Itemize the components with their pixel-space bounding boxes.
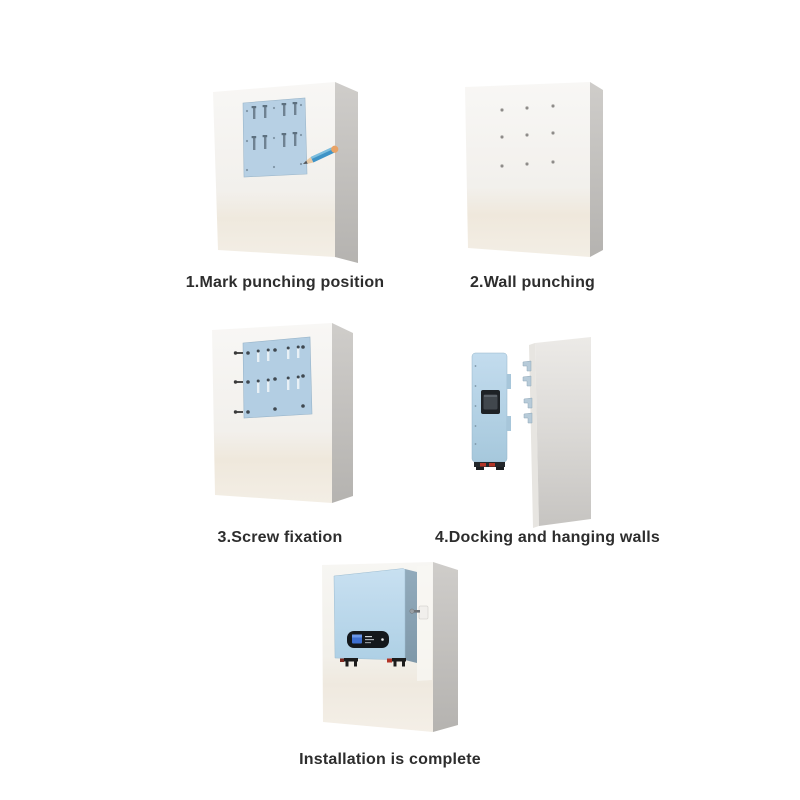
step3-illustration: [195, 315, 370, 511]
wall-hook: [523, 361, 531, 371]
step4-illustration: [455, 330, 625, 530]
wall-side-face: [335, 82, 358, 263]
wall-side-face: [590, 82, 603, 257]
wall-edge-view: [523, 337, 591, 528]
step4-caption: 4.Docking and hanging walls: [425, 528, 670, 548]
wall-side-face: [433, 562, 458, 732]
installation-guide: 1.Mark punching position: [0, 0, 800, 800]
terminal-red: [480, 463, 486, 467]
step1-caption: 1.Mark punching position: [160, 273, 410, 293]
battery-side-view: [472, 353, 511, 470]
battery-side-panel: [405, 569, 417, 663]
wall-hook: [524, 398, 532, 408]
step1-illustration: [190, 70, 380, 270]
step2-caption: 2.Wall punching: [420, 273, 645, 293]
connector-red: [340, 659, 344, 663]
mounting-plate: [234, 337, 312, 418]
step5-caption: Installation is complete: [265, 750, 515, 770]
wall-side-face: [332, 323, 353, 503]
marking-template: [243, 98, 307, 177]
mounted-battery: [334, 569, 428, 667]
wall-block: [465, 82, 603, 257]
hanging-tabs: [507, 374, 511, 431]
wall-slab-face: [535, 337, 591, 526]
mounting-foot: [392, 658, 406, 662]
mounting-foot: [344, 658, 358, 662]
side-handle-connector: [481, 390, 500, 414]
connector-red: [387, 659, 392, 663]
wall-hook: [524, 413, 532, 423]
step3-caption: 3.Screw fixation: [155, 528, 405, 548]
terminal-red: [489, 463, 495, 467]
step2-illustration: [455, 70, 615, 265]
step5-illustration: [305, 555, 485, 750]
indicator-led: [381, 638, 384, 641]
wall-hook: [523, 376, 531, 386]
status-display: [347, 631, 389, 648]
wall-highlight-strip: [417, 565, 432, 681]
bottom-terminals: [474, 462, 505, 470]
